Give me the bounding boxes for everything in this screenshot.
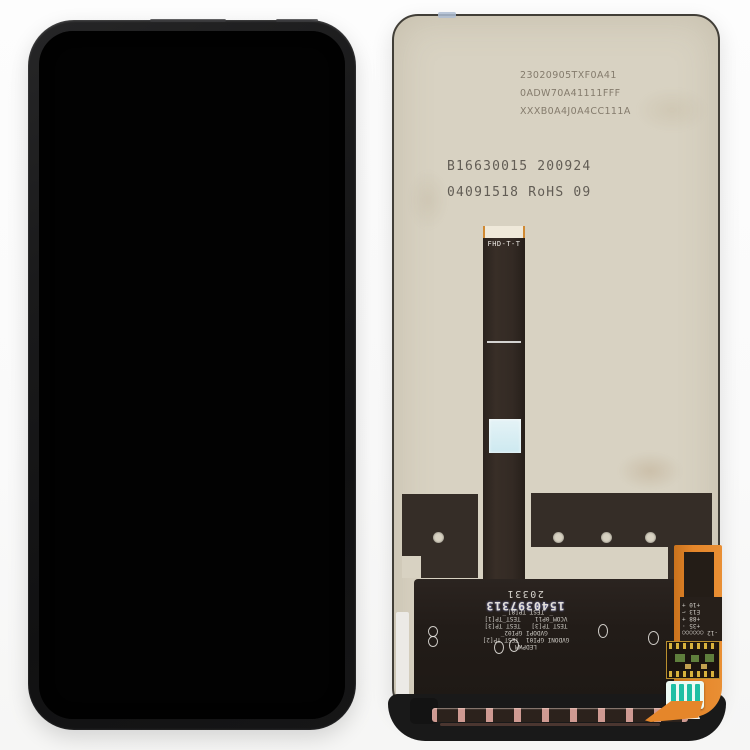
copper-edge-line: [440, 723, 660, 726]
connector-component: [685, 664, 691, 669]
pcb-test-label: GVDONI GPI01 TEST_TP[2]: [428, 636, 624, 643]
pcb-test-label-block: LEDPWM GVDONI GPI01 TEST_TP[2] GVDOPI GP…: [428, 608, 624, 650]
board-connector: [666, 641, 720, 679]
printed-code-line: 0ADW70A41111FFF: [520, 88, 620, 99]
pcb-right-label: -12 ○○○○○○: [682, 629, 718, 636]
ribbon-label: FHD-T-T: [483, 240, 525, 248]
alignment-hole: [553, 532, 564, 543]
pcb-right-label: +10 +: [682, 601, 718, 608]
plate-stain: [636, 88, 708, 132]
connector-pins: [669, 671, 717, 677]
test-point-pad: [428, 636, 438, 647]
main-flex-ribbon: [483, 238, 525, 580]
alignment-hole: [601, 532, 612, 543]
flex-wing-left-notch: [402, 556, 421, 578]
test-point-pad: [648, 631, 659, 645]
top-edge-blue-sticker: [438, 12, 456, 18]
pcb-right-label-block: -12 ○○○○○○ +35 · +88 + E13 ⌐ +10 +: [682, 601, 718, 636]
printed-code-line: 23020905TXF0A41: [520, 70, 617, 81]
connector-component: [705, 654, 714, 662]
pcb-test-label: VCOM_0P11 TEST_TP[1]: [428, 615, 624, 622]
plate-stain: [408, 170, 448, 230]
ribbon-stiffener: [483, 226, 525, 238]
test-point-pad: [494, 641, 504, 654]
printed-code-line: XXXB0A4J0A4CC111A: [520, 106, 631, 117]
alignment-hole: [645, 532, 656, 543]
connector-component: [691, 655, 699, 662]
product-photo-stage: 23020905TXF0A41 0ADW70A41111FFF XXXB0A4J…: [0, 0, 750, 750]
inspection-sticker: [489, 419, 521, 453]
test-point-pad: [598, 624, 608, 638]
test-point-pad: [509, 639, 519, 652]
etched-code-line: 04091518 RoHS 09: [447, 185, 591, 200]
connector-pins: [669, 643, 717, 649]
backplate-side-edge: [396, 612, 409, 704]
top-edge-seam: [276, 19, 318, 22]
pcb-right-label: E13 ⌐: [682, 608, 718, 615]
etched-code-line: B16630015 200924: [447, 159, 591, 174]
pcb-test-label: TEST_TP[3] TEST_TP[3]: [428, 622, 624, 629]
pcb-test-label: LEDPWM: [428, 643, 624, 650]
alignment-hole: [433, 532, 444, 543]
plate-stain: [618, 452, 682, 490]
connector-component: [701, 664, 707, 669]
pcb-right-label: +88 +: [682, 615, 718, 622]
flex-dark-window: [684, 552, 714, 598]
pcb-test-label: GVDOPI GPI02: [428, 629, 624, 636]
pcb-batch-code: 20331: [455, 588, 595, 599]
lcd-front-screen: [39, 31, 345, 719]
pcb-right-label: +35 ·: [682, 622, 718, 629]
flex-dark-window: -12 ○○○○○○ +35 · +88 + E13 ⌐ +10 +: [680, 597, 722, 641]
lcd-assembly-front-frame: [28, 20, 356, 730]
ribbon-solder-line: [487, 341, 521, 343]
pcb-test-label: TEST_TP[8]: [428, 608, 624, 615]
connector-component: [675, 654, 685, 662]
top-edge-seam: [150, 19, 226, 22]
